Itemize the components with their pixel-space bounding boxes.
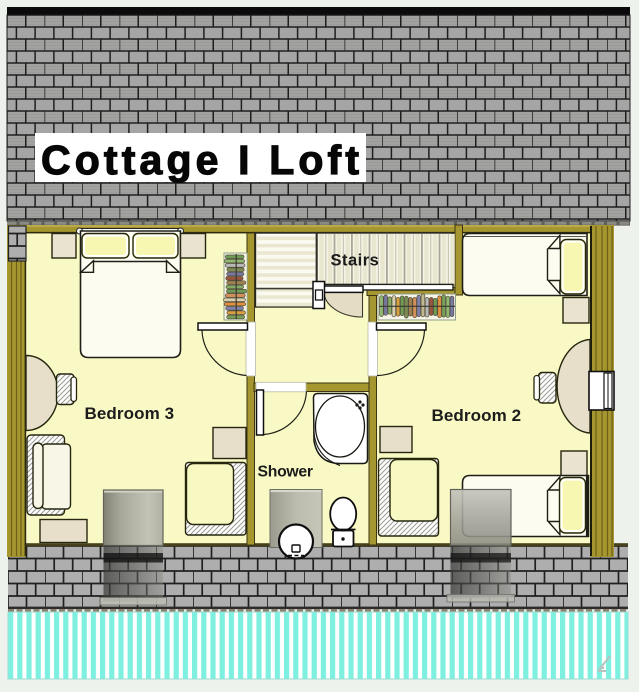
svg-text:Bedroom 2: Bedroom 2 [432,406,522,425]
svg-text:Stairs: Stairs [331,252,380,270]
svg-text:Shower: Shower [258,464,313,481]
svg-text:Cottage I Loft: Cottage I Loft [41,137,359,183]
svg-text:Bedroom 3: Bedroom 3 [85,404,175,423]
